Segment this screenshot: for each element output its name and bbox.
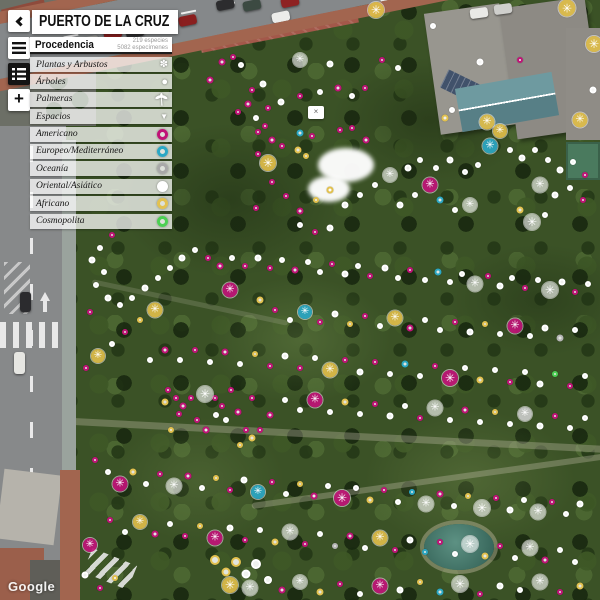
- map-marker-dot[interactable]: [262, 123, 268, 129]
- map-marker-dot[interactable]: [397, 587, 404, 594]
- map-marker-dot[interactable]: [477, 591, 483, 597]
- map-marker-dot[interactable]: [227, 525, 234, 532]
- map-marker-dot[interactable]: [497, 583, 504, 590]
- legend-row-plantas-y-arbustos[interactable]: Plantas y Arbustos✽: [30, 57, 172, 72]
- map-marker-dot[interactable]: [507, 421, 513, 427]
- map-marker-dot[interactable]: [278, 99, 285, 106]
- map-marker-flower[interactable]: ✳: [91, 349, 105, 363]
- map-marker-dot[interactable]: [497, 283, 504, 290]
- map-marker-flower[interactable]: ✳: [113, 477, 128, 492]
- map-marker-dot[interactable]: [97, 245, 103, 251]
- map-marker-dot[interactable]: [447, 157, 454, 164]
- map-marker-flower[interactable]: ✳: [222, 577, 238, 593]
- map-marker-flower[interactable]: ✳: [480, 115, 495, 130]
- map-marker-dot[interactable]: [267, 412, 274, 419]
- map-marker-dot[interactable]: [517, 207, 524, 214]
- map-marker-dot[interactable]: [231, 557, 241, 567]
- map-marker-dot[interactable]: [312, 229, 318, 235]
- map-marker-dot[interactable]: [89, 257, 96, 264]
- map-marker-dot[interactable]: [329, 261, 335, 267]
- map-marker-dot[interactable]: [452, 207, 458, 213]
- map-marker-dot[interactable]: [559, 279, 566, 286]
- map-marker-dot[interactable]: [143, 481, 149, 487]
- map-marker-dot[interactable]: [437, 491, 444, 498]
- map-marker-dot[interactable]: [459, 271, 465, 277]
- map-marker-dot[interactable]: [297, 93, 303, 99]
- map-marker-dot[interactable]: [241, 477, 248, 484]
- map-marker-dot[interactable]: [342, 271, 349, 278]
- map-marker-dot[interactable]: [417, 373, 423, 379]
- map-marker-dot[interactable]: [492, 409, 498, 415]
- map-marker-dot[interactable]: [417, 157, 423, 163]
- map-marker-dot[interactable]: [509, 275, 515, 281]
- map-marker-flower[interactable]: ✳: [518, 407, 532, 421]
- map-marker-dot[interactable]: [297, 130, 304, 137]
- map-marker-dot[interactable]: [482, 553, 489, 560]
- map-marker-dot[interactable]: [317, 269, 323, 275]
- map-marker-dot[interactable]: [283, 491, 289, 497]
- map-marker-dot[interactable]: [332, 543, 338, 549]
- map-marker-dot[interactable]: [517, 57, 523, 63]
- map-marker-flower[interactable]: ✳: [383, 168, 397, 182]
- map-marker-dot[interactable]: [422, 277, 428, 283]
- map-marker-dot[interactable]: [570, 159, 576, 165]
- map-marker-dot[interactable]: [395, 499, 401, 505]
- map-marker-dot[interactable]: [517, 587, 523, 593]
- map-marker-dot[interactable]: [112, 575, 118, 581]
- map-marker-flower[interactable]: ✳: [197, 386, 213, 402]
- map-marker-dot[interactable]: [407, 537, 414, 544]
- map-marker-dot[interactable]: [107, 517, 113, 523]
- map-marker-dot[interactable]: [242, 263, 248, 269]
- map-marker-dot[interactable]: [203, 427, 210, 434]
- map-marker-dot[interactable]: [279, 257, 285, 263]
- map-marker-flower[interactable]: ✳: [542, 282, 558, 298]
- map-marker-dot[interactable]: [342, 399, 349, 406]
- map-marker-dot[interactable]: [179, 255, 186, 262]
- map-marker-dot[interactable]: [542, 557, 549, 564]
- map-marker-dot[interactable]: [235, 409, 242, 416]
- legend-row-palmeras[interactable]: Palmeras: [30, 92, 172, 107]
- map-marker-dot[interactable]: [325, 483, 331, 489]
- map-marker-dot[interactable]: [362, 545, 368, 551]
- map-marker-dot[interactable]: [109, 232, 115, 238]
- map-marker-dot[interactable]: [535, 277, 541, 283]
- map-marker-flower[interactable]: ✳: [559, 0, 576, 17]
- map-marker-dot[interactable]: [295, 147, 302, 154]
- map-marker-dot[interactable]: [317, 319, 323, 325]
- map-marker-dot[interactable]: [433, 165, 439, 171]
- map-marker-dot[interactable]: [572, 327, 578, 333]
- map-marker-dot[interactable]: [165, 387, 171, 393]
- map-marker-dot[interactable]: [557, 335, 564, 342]
- map-marker-dot[interactable]: [537, 381, 544, 388]
- map-marker-dot[interactable]: [297, 365, 303, 371]
- legend-header[interactable]: Procedencia 219 especies 5082 especímene…: [30, 37, 172, 54]
- map-marker-flower[interactable]: ✳: [442, 370, 458, 386]
- map-marker-dot[interactable]: [577, 501, 584, 508]
- map-marker-dot[interactable]: [492, 367, 498, 373]
- map-marker-flower[interactable]: ✳: [533, 575, 548, 590]
- map-marker-dot[interactable]: [477, 59, 484, 66]
- map-marker-dot[interactable]: [105, 469, 111, 475]
- map-marker-dot[interactable]: [168, 427, 174, 433]
- map-marker-dot[interactable]: [117, 302, 123, 308]
- map-marker-dot[interactable]: [255, 151, 261, 157]
- map-marker-dot[interactable]: [297, 481, 303, 487]
- map-marker-dot[interactable]: [582, 373, 588, 379]
- map-marker-dot[interactable]: [327, 225, 334, 232]
- map-marker-dot[interactable]: [199, 485, 205, 491]
- map-marker-dot[interactable]: [395, 65, 401, 71]
- map-marker-dot[interactable]: [272, 307, 278, 313]
- map-marker-dot[interactable]: [264, 576, 272, 584]
- map-marker-flower[interactable]: ✳: [243, 581, 258, 596]
- map-marker-flower[interactable]: ✳: [83, 538, 97, 552]
- map-marker-dot[interactable]: [192, 347, 198, 353]
- map-marker-flower[interactable]: ✳: [373, 531, 388, 546]
- map-marker-dot[interactable]: [542, 325, 549, 332]
- map-marker-dot[interactable]: [552, 371, 558, 377]
- map-marker-flower[interactable]: ✳: [419, 497, 434, 512]
- map-marker-dot[interactable]: [243, 427, 249, 433]
- legend-row-espacios[interactable]: Espacios▼: [30, 109, 172, 124]
- map-marker-dot[interactable]: [442, 115, 449, 122]
- map-marker-dot[interactable]: [522, 369, 528, 375]
- map-marker-dot[interactable]: [357, 411, 363, 417]
- map-marker-dot[interactable]: [283, 193, 289, 199]
- map-marker-dot[interactable]: [205, 255, 211, 261]
- legend-row-oriental-asiatico[interactable]: Oriental/Asiático: [30, 179, 172, 194]
- map-marker-dot[interactable]: [335, 85, 342, 92]
- map-marker-dot[interactable]: [465, 493, 471, 499]
- map-marker-dot[interactable]: [355, 263, 361, 269]
- map-marker-dot[interactable]: [182, 533, 188, 539]
- map-marker-flower[interactable]: ✳: [463, 198, 477, 212]
- map-marker-dot[interactable]: [379, 57, 385, 63]
- map-marker-dot[interactable]: [257, 527, 263, 533]
- map-marker-flower[interactable]: ✳: [223, 283, 238, 298]
- map-marker-flower[interactable]: ✳: [428, 401, 443, 416]
- map-marker-dot[interactable]: [452, 319, 458, 325]
- map-marker-flower[interactable]: ✳: [468, 277, 483, 292]
- map-marker-dot[interactable]: [402, 403, 408, 409]
- map-marker-dot[interactable]: [122, 529, 128, 535]
- map-marker-dot[interactable]: [357, 369, 364, 376]
- map-marker-dot[interactable]: [337, 581, 343, 587]
- map-marker-flower[interactable]: ✳: [293, 53, 307, 67]
- map-marker-dot[interactable]: [252, 351, 258, 357]
- map-marker-dot[interactable]: [282, 353, 289, 360]
- map-marker-dot[interactable]: [477, 377, 484, 384]
- map-marker-dot[interactable]: [297, 208, 304, 215]
- map-marker-dot[interactable]: [447, 279, 453, 285]
- map-marker-dot[interactable]: [147, 357, 153, 363]
- map-marker-dot[interactable]: [157, 471, 163, 477]
- map-marker-dot[interactable]: [367, 273, 373, 279]
- map-marker-dot[interactable]: [137, 317, 143, 323]
- legend-row-oceania[interactable]: Oceanía: [30, 161, 172, 176]
- map-marker-dot[interactable]: [507, 507, 514, 514]
- map-marker-dot[interactable]: [210, 555, 220, 565]
- map-marker-dot[interactable]: [249, 87, 255, 93]
- legend-row-cosmopolita[interactable]: Cosmopolita: [30, 214, 172, 229]
- map-marker-dot[interactable]: [327, 187, 334, 194]
- map-marker-dot[interactable]: [347, 321, 353, 327]
- map-marker-dot[interactable]: [302, 541, 308, 547]
- map-marker-dot[interactable]: [432, 363, 438, 369]
- map-marker-dot[interactable]: [590, 87, 597, 94]
- map-marker-dot[interactable]: [337, 127, 343, 133]
- menu-button[interactable]: [8, 37, 30, 59]
- list-button[interactable]: [8, 63, 30, 85]
- map-marker-dot[interactable]: [265, 105, 271, 111]
- map-marker-dot[interactable]: [176, 411, 182, 417]
- map-marker-dot[interactable]: [222, 349, 229, 356]
- map-marker-dot[interactable]: [222, 568, 231, 577]
- map-marker-dot[interactable]: [363, 137, 370, 144]
- map-marker-dot[interactable]: [327, 61, 334, 68]
- map-marker-dot[interactable]: [255, 129, 261, 135]
- map-marker-dot[interactable]: [521, 497, 527, 503]
- map-marker-dot[interactable]: [462, 365, 468, 371]
- map-marker-dot[interactable]: [109, 341, 115, 347]
- map-marker-dot[interactable]: [253, 115, 259, 121]
- map-marker-dot[interactable]: [219, 59, 226, 66]
- map-marker-dot[interactable]: [392, 547, 398, 553]
- map-marker-dot[interactable]: [381, 487, 387, 493]
- map-marker-dot[interactable]: [572, 289, 578, 295]
- map-marker-dot[interactable]: [279, 143, 285, 149]
- map-marker-dot[interactable]: [362, 313, 368, 319]
- map-marker-dot[interactable]: [549, 499, 555, 505]
- map-marker-dot[interactable]: [582, 172, 588, 178]
- map-marker-dot[interactable]: [242, 537, 248, 543]
- map-marker-dot[interactable]: [567, 383, 573, 389]
- map-marker-dot[interactable]: [269, 137, 276, 144]
- map-marker-dot[interactable]: [162, 347, 169, 354]
- map-marker-dot[interactable]: [83, 365, 89, 371]
- map-marker-dot[interactable]: [142, 285, 149, 292]
- map-marker-flower[interactable]: ✳: [283, 525, 298, 540]
- map-marker-dot[interactable]: [267, 265, 273, 271]
- map-marker-dot[interactable]: [475, 162, 481, 168]
- map-marker-dot[interactable]: [313, 197, 319, 203]
- map-marker-dot[interactable]: [585, 281, 591, 287]
- map-marker-dot[interactable]: [537, 423, 544, 430]
- map-marker-dot[interactable]: [353, 485, 359, 491]
- map-marker-dot[interactable]: [552, 192, 559, 199]
- map-marker-dot[interactable]: [462, 169, 468, 175]
- map-marker-dot[interactable]: [207, 359, 213, 365]
- map-marker-dot[interactable]: [402, 361, 409, 368]
- map-marker-dot[interactable]: [152, 531, 159, 538]
- map-marker-flower[interactable]: ✳: [508, 319, 523, 334]
- map-marker-dot[interactable]: [188, 395, 194, 401]
- map-marker-dot[interactable]: [287, 317, 293, 323]
- map-marker-dot[interactable]: [349, 125, 355, 131]
- map-marker-flower[interactable]: ✳: [573, 113, 588, 128]
- map-marker-dot[interactable]: [567, 185, 573, 191]
- map-marker-dot[interactable]: [267, 363, 273, 369]
- map-marker-dot[interactable]: [563, 511, 569, 517]
- map-marker-flower[interactable]: ✳: [462, 536, 478, 552]
- map-marker-dot[interactable]: [493, 495, 499, 501]
- map-marker-dot[interactable]: [92, 457, 98, 463]
- map-marker-dot[interactable]: [297, 407, 303, 413]
- map-marker-dot[interactable]: [412, 192, 418, 198]
- map-marker-dot[interactable]: [249, 435, 256, 442]
- map-marker-flower[interactable]: ✳: [533, 178, 548, 193]
- map-marker-dot[interactable]: [317, 89, 323, 95]
- zoom-in-button[interactable]: +: [8, 89, 30, 111]
- map-marker-dot[interactable]: [527, 333, 533, 339]
- map-marker-dot[interactable]: [282, 397, 288, 403]
- map-marker-dot[interactable]: [279, 587, 286, 594]
- map-marker-dot[interactable]: [180, 403, 187, 410]
- legend-row-americano[interactable]: Americano: [30, 127, 172, 142]
- map-marker-dot[interactable]: [417, 579, 423, 585]
- map-marker-flower[interactable]: ✳: [208, 531, 223, 546]
- map-marker-dot[interactable]: [507, 379, 513, 385]
- map-marker-dot[interactable]: [545, 157, 551, 163]
- map-marker-dot[interactable]: [407, 267, 413, 273]
- map-marker-dot[interactable]: [405, 165, 412, 172]
- map-marker-dot[interactable]: [407, 325, 414, 332]
- map-marker-dot[interactable]: [260, 81, 267, 88]
- map-marker-dot[interactable]: [213, 475, 219, 481]
- map-marker-dot[interactable]: [522, 285, 528, 291]
- map-marker-dot[interactable]: [238, 62, 244, 68]
- legend-row-africano[interactable]: Africano: [30, 196, 172, 211]
- map-marker-dot[interactable]: [162, 399, 169, 406]
- map-marker-flower[interactable]: ✳: [167, 479, 182, 494]
- map-marker-dot[interactable]: [229, 255, 235, 261]
- map-marker-dot[interactable]: [580, 197, 586, 203]
- map-marker-dot[interactable]: [532, 147, 538, 153]
- map-marker-dot[interactable]: [447, 417, 453, 423]
- map-marker-dot[interactable]: [251, 559, 261, 569]
- map-marker-flower[interactable]: ✳: [148, 303, 163, 318]
- map-marker-dot[interactable]: [272, 539, 279, 546]
- map-marker-dot[interactable]: [372, 401, 378, 407]
- map-marker-dot[interactable]: [362, 85, 368, 91]
- map-marker-dot[interactable]: [235, 109, 241, 115]
- map-marker-flower[interactable]: ✳: [474, 500, 490, 516]
- map-marker-dot[interactable]: [557, 167, 564, 174]
- map-marker-dot[interactable]: [185, 473, 192, 480]
- map-marker-dot[interactable]: [97, 585, 103, 591]
- back-button[interactable]: [8, 10, 30, 32]
- map-marker-dot[interactable]: [105, 295, 112, 302]
- map-marker-dot[interactable]: [422, 549, 428, 555]
- map-marker-dot[interactable]: [167, 265, 173, 271]
- map-marker-dot[interactable]: [317, 531, 323, 537]
- map-marker-flower[interactable]: ✳: [323, 363, 338, 378]
- map-marker-dot[interactable]: [219, 403, 225, 409]
- map-marker-dot[interactable]: [435, 269, 442, 276]
- map-marker-dot[interactable]: [347, 533, 354, 540]
- map-marker-flower[interactable]: ✳: [452, 576, 468, 592]
- map-marker-dot[interactable]: [417, 415, 423, 421]
- map-marker-dot[interactable]: [167, 521, 173, 527]
- map-marker-dot[interactable]: [255, 255, 262, 262]
- map-marker-dot[interactable]: [449, 107, 455, 113]
- map-marker-dot[interactable]: [452, 551, 458, 557]
- map-marker-dot[interactable]: [223, 417, 229, 423]
- map-marker-dot[interactable]: [93, 282, 99, 288]
- map-marker-dot[interactable]: [87, 309, 93, 315]
- map-marker-flower[interactable]: ✳: [298, 305, 312, 319]
- map-marker-dot[interactable]: [237, 361, 243, 367]
- map-marker-dot[interactable]: [342, 357, 348, 363]
- map-marker-dot[interactable]: [237, 442, 243, 448]
- map-marker-dot[interactable]: [305, 259, 311, 265]
- map-marker-dot[interactable]: [312, 355, 318, 361]
- map-marker-dot[interactable]: [192, 247, 198, 253]
- map-marker-flower[interactable]: ✳: [423, 178, 438, 193]
- map-marker-dot[interactable]: [519, 155, 526, 162]
- map-canvas[interactable]: × ✳✳✳✳✳✳✳✳✳✳✳✳✳✳✳✳✳✳✳✳✳✳✳✳✳✳✳✳✳✳✳✳✳✳✳✳✳✳…: [0, 0, 600, 600]
- map-marker-dot[interactable]: [577, 583, 584, 590]
- map-marker-dot[interactable]: [382, 265, 389, 272]
- map-marker-flower[interactable]: ✳: [260, 155, 276, 171]
- map-marker-dot[interactable]: [212, 395, 218, 401]
- map-marker-dot[interactable]: [155, 275, 161, 281]
- map-marker-dot[interactable]: [213, 412, 219, 418]
- map-marker-dot[interactable]: [227, 487, 233, 493]
- legend-row-arboles[interactable]: Árboles●: [30, 74, 172, 89]
- map-marker-dot[interactable]: [357, 591, 363, 597]
- map-marker-dot[interactable]: [245, 101, 252, 108]
- map-marker-dot[interactable]: [207, 77, 214, 84]
- map-marker-dot[interactable]: [467, 329, 474, 336]
- map-marker-dot[interactable]: [309, 133, 315, 139]
- map-marker-dot[interactable]: [485, 273, 491, 279]
- map-marker-flower[interactable]: ✳: [368, 2, 384, 18]
- map-marker-flower[interactable]: ✳: [373, 579, 388, 594]
- map-marker-flower[interactable]: ✳: [586, 36, 600, 52]
- map-marker-dot[interactable]: [507, 147, 513, 153]
- map-marker-dot[interactable]: [249, 395, 255, 401]
- map-marker-flower[interactable]: ✳: [524, 214, 540, 230]
- map-marker-dot[interactable]: [395, 275, 401, 281]
- map-marker-dot[interactable]: [101, 269, 107, 275]
- map-marker-dot[interactable]: [437, 539, 443, 545]
- map-marker-flower[interactable]: ✳: [133, 515, 147, 529]
- map-marker-dot[interactable]: [497, 331, 503, 337]
- map-marker-dot[interactable]: [177, 357, 183, 363]
- map-marker-dot[interactable]: [482, 321, 488, 327]
- map-marker-dot[interactable]: [129, 295, 135, 301]
- map-marker-dot[interactable]: [311, 493, 318, 500]
- map-marker-dot[interactable]: [397, 202, 404, 209]
- map-marker-flower[interactable]: ✳: [308, 393, 323, 408]
- map-marker-dot[interactable]: [253, 205, 259, 211]
- map-marker-dot[interactable]: [173, 395, 179, 401]
- map-marker-dot[interactable]: [317, 589, 324, 596]
- map-marker-dot[interactable]: [292, 267, 299, 274]
- map-marker-flower[interactable]: ✳: [334, 490, 350, 506]
- map-marker-dot[interactable]: [303, 153, 309, 159]
- map-marker-dot[interactable]: [409, 489, 415, 495]
- map-marker-dot[interactable]: [582, 415, 588, 421]
- map-marker-dot[interactable]: [242, 570, 251, 579]
- map-marker-dot[interactable]: [542, 212, 548, 218]
- map-marker-dot[interactable]: [332, 311, 339, 318]
- map-marker-dot[interactable]: [430, 23, 436, 29]
- map-marker-dot[interactable]: [230, 54, 236, 60]
